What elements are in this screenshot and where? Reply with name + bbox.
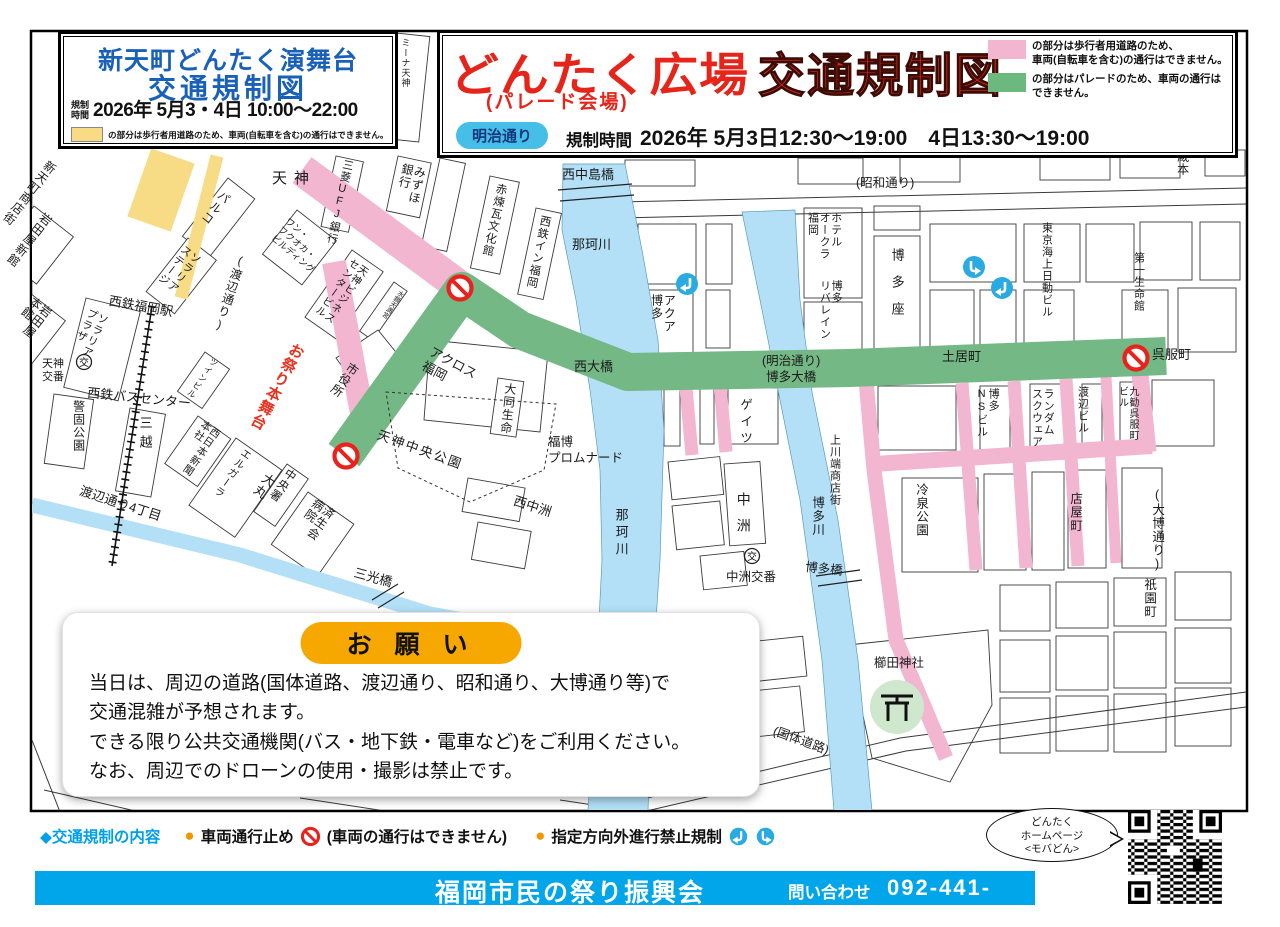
- koban-icon: 交: [745, 549, 760, 564]
- map-label: アクア 博多: [650, 294, 675, 333]
- map-label: 中洲: [736, 492, 751, 544]
- orange-bullet-icon: ●: [535, 826, 545, 846]
- main-time-value: 2026年 5月3日12:30〜19:00 4日13:30〜19:00: [640, 122, 1089, 152]
- stage-box-time-value: 2026年 5月3・4日 10:00〜22:00: [93, 95, 358, 122]
- map-label: 祇園町: [1142, 578, 1155, 619]
- svg-text:交: 交: [747, 550, 757, 563]
- qr-code: [1128, 810, 1222, 904]
- map-label: 那珂川: [572, 238, 611, 253]
- yellow-legend-swatch: [71, 127, 103, 142]
- organizer-name: 福岡市民の祭り振興会: [435, 873, 705, 909]
- homepage-speech-bubble: どんたく ホームページ <モバどん>: [986, 808, 1118, 862]
- no-entry-icon: [300, 826, 321, 847]
- turn-restriction-icon: [755, 826, 776, 847]
- map-label: 福博 プロムナード: [548, 434, 623, 467]
- notice-body: 当日は、周辺の道路(国体道路、渡辺通り、昭和通り、大博通り等)で 交通混雑が予想…: [89, 669, 743, 787]
- map-label: 中洲交番: [726, 570, 776, 584]
- map-label: 冷泉公園: [914, 483, 927, 537]
- orange-bullet-icon: ●: [184, 826, 194, 846]
- map-label: 天神 交番: [42, 358, 64, 383]
- map-label: ミーナ天神: [400, 38, 409, 88]
- map-label: 呉服町: [1152, 348, 1191, 363]
- map-label: (明治通り) 博多大橋: [762, 354, 820, 385]
- notice-box: お 願 い 当日は、周辺の道路(国体道路、渡辺通り、昭和通り、大博通り等)で 交…: [62, 612, 760, 797]
- contact-label: 問い合わせ: [788, 879, 871, 903]
- traffic-regulation-poster: { "colors":{ "title_blue":"#1961b8","tit…: [0, 0, 1280, 905]
- map-label: 三越: [138, 416, 152, 454]
- meiji-dori-badge: 明治通り: [456, 122, 548, 149]
- map-label: 西中島橋: [562, 168, 614, 183]
- turn-restriction-icon: [728, 826, 749, 847]
- map-label: 九勧呉服町 ビル: [1116, 386, 1137, 441]
- legend-heading: ◆交通規制の内容: [40, 825, 160, 847]
- map-label: ホテル オークラ 福岡: [806, 212, 841, 260]
- legend-bar: ◆交通規制の内容 ● 車両通行止め (車両の通行はできません) ● 指定方向外進…: [40, 825, 776, 847]
- main-title-sub: (パレード会場): [486, 87, 629, 114]
- main-header-legend: の部分は歩行者用道路のため、 車両(自転車を含む)の通行はできません。 の部分は…: [988, 40, 1230, 107]
- stage-box-legend-text: の部分は歩行者用道路のため、車両(自転車を含む)の通行はできません。: [108, 129, 388, 141]
- pink-legend-text: の部分は歩行者用道路のため、 車両(自転車を含む)の通行はできません。: [1032, 40, 1228, 67]
- map-label: 土居町: [942, 350, 981, 365]
- map-label: 博多 リバレイン: [818, 280, 841, 340]
- map-label: 櫛田神社: [874, 656, 924, 670]
- stage-regulation-box: 新天町どんたく演舞台 交通規制図 規制 時間 2026年 5月3・4日 10:0…: [58, 31, 398, 149]
- contact-phone: 092-441-1118: [887, 875, 1035, 927]
- map-label: (昭和通り): [856, 176, 914, 190]
- legend-item1-label: 車両通行止め: [201, 825, 294, 847]
- map-label: ランダム スクウェア: [1030, 388, 1053, 448]
- torii-icon: [870, 680, 924, 734]
- main-time-label: 規制時間: [566, 127, 632, 151]
- legend-item1-note: (車両の通行はできません): [327, 825, 507, 847]
- map-label: 店屋町: [1068, 492, 1081, 533]
- map-label: 博多 NSビル: [975, 388, 998, 438]
- map-label: 天神: [272, 170, 316, 187]
- map-label: 第一生命館: [1132, 252, 1144, 312]
- map-label: 警固公園: [72, 400, 85, 452]
- legend-item2-label: 指定方向外進行禁止規制: [551, 825, 722, 847]
- map-label: 西大橋: [574, 360, 613, 375]
- map-label: (大博通り): [1150, 488, 1163, 572]
- notice-title: お 願 い: [301, 622, 522, 664]
- main-header-box: どんたく広場 (パレード会場) 交通規制図 明治通り 規制時間 2026年 5月…: [437, 30, 1238, 158]
- map-label: 東京海上日動ビル: [1040, 222, 1052, 318]
- map-label: ゲイツ: [738, 398, 751, 448]
- main-title-right: 交通規制図: [758, 37, 1003, 106]
- stage-box-time-label: 規制 時間: [71, 100, 89, 121]
- map-label: 那珂川: [614, 508, 628, 559]
- pink-legend-swatch: [988, 40, 1026, 59]
- stage-box-legend: の部分は歩行者用道路のため、車両(自転車を含む)の通行はできません。: [71, 127, 388, 142]
- footer-bar: 福岡市民の祭り振興会 問い合わせ 092-441-1118: [35, 871, 1035, 905]
- map-label: 博多川: [810, 496, 823, 537]
- green-legend-text: の部分はパレードのため、車両の通行は できません。: [1032, 73, 1221, 100]
- green-legend-swatch: [988, 73, 1026, 92]
- map-label: 上川端商店街: [828, 434, 840, 506]
- map-label: 渡辺ビル: [1076, 386, 1088, 434]
- map-label: 博多座: [890, 248, 904, 329]
